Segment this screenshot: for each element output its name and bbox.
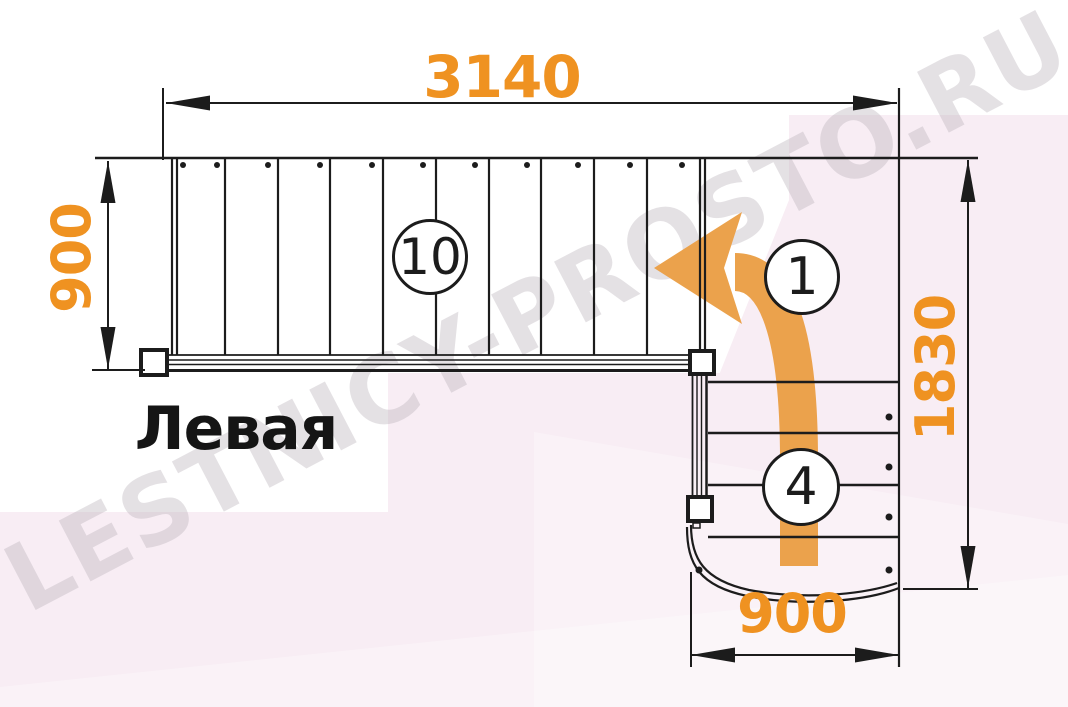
handrail-post-left: [141, 350, 167, 375]
step-count-first-step: 1: [764, 239, 840, 315]
step-count-upper-flight-value: 10: [398, 232, 462, 282]
page-title: Левая: [135, 399, 338, 459]
dim-label-right-height: 1830: [909, 295, 963, 441]
dim-label-bottom-width: 900: [737, 587, 847, 641]
handrail-post-corner: [690, 351, 714, 374]
stair-plan-diagram: LESTNICY-PROSTO.RU: [0, 0, 1068, 707]
handrail-post-bottom: [688, 497, 712, 521]
step-count-first-step-value: 1: [785, 251, 818, 303]
dim-label-left-depth: 900: [45, 203, 99, 313]
dim-label-top-width: 3140: [423, 48, 580, 106]
step-count-lower-flight: 4: [762, 448, 840, 526]
step-count-upper-flight: 10: [392, 219, 468, 295]
step-count-lower-flight-value: 4: [784, 461, 817, 513]
